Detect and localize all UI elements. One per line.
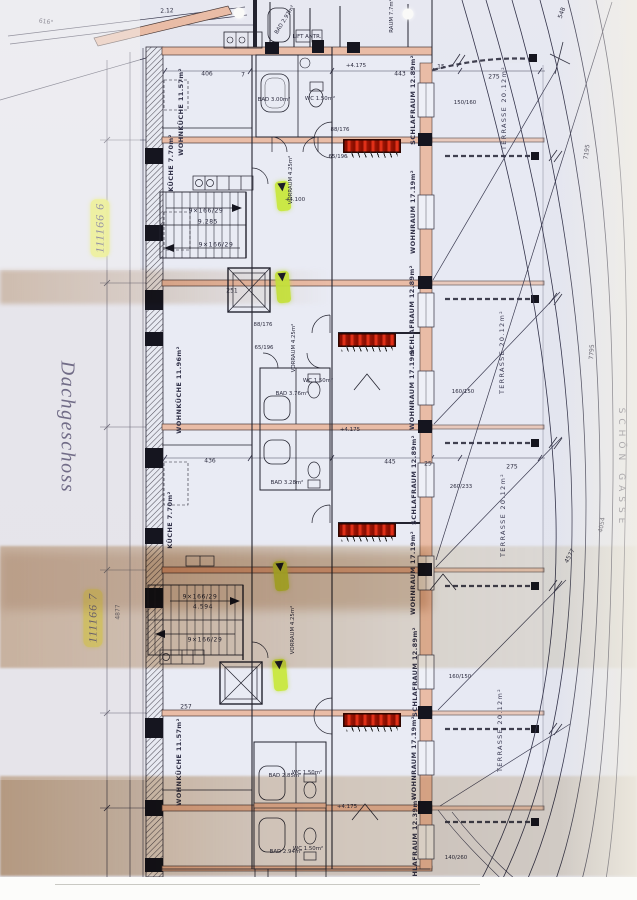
scan-stain-band xyxy=(0,776,637,876)
paper-edge-shadow xyxy=(55,884,480,885)
left-facade-wall xyxy=(145,47,163,877)
paper-tint xyxy=(0,270,145,780)
paper-edge-light xyxy=(0,0,140,270)
right-facade xyxy=(418,63,434,869)
scan-bottom-margin xyxy=(0,877,637,900)
scanned-floorplan-page: ▼ ▼ ▼ ▼ Dachgeschoss111166 6111166 7SCHÖ… xyxy=(0,0,637,900)
paper-edge-light xyxy=(560,0,637,900)
